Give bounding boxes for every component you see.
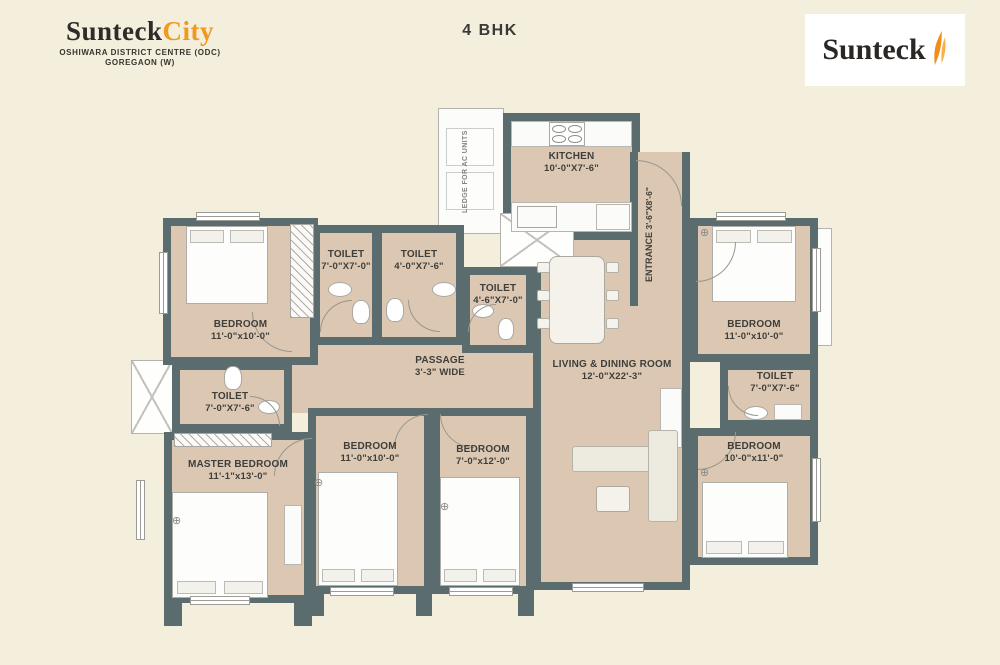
pillow xyxy=(322,569,355,582)
floor-plan: SunteckCity OSHIWARA DISTRICT CENTRE (OD… xyxy=(0,0,1000,665)
chair-symbol xyxy=(537,318,550,329)
label-living-dining: LIVING & DINING ROOM12'-0"X22'-3" xyxy=(538,358,686,383)
label-bedroom-top-left: BEDROOM11'-0"x10'-0" xyxy=(168,318,313,343)
wc-symbol xyxy=(498,318,514,340)
ac-ledge-box xyxy=(438,108,504,234)
wc-symbol xyxy=(352,300,370,324)
chair-symbol xyxy=(606,318,619,329)
bed-symbol xyxy=(318,472,398,586)
bath-counter xyxy=(774,404,802,420)
window-symbol xyxy=(330,587,394,596)
wardrobe-symbol xyxy=(174,433,272,447)
window-symbol xyxy=(812,248,821,312)
pillow xyxy=(757,230,791,243)
window-symbol xyxy=(136,480,145,540)
kitchen-sink xyxy=(517,206,557,228)
window-symbol xyxy=(190,596,250,605)
washbasin-symbol xyxy=(432,282,456,297)
label-passage: PASSAGE3'-3" WIDE xyxy=(385,354,495,379)
pillow xyxy=(230,230,264,243)
developer-logo-text: Sunteck xyxy=(822,33,925,67)
chair-symbol xyxy=(606,262,619,273)
pillow xyxy=(361,569,394,582)
label-kitchen: KITCHEN10'-0"X7'-6" xyxy=(511,150,632,175)
window-symbol xyxy=(196,212,260,221)
chair-symbol xyxy=(537,290,550,301)
label-toilet-left: TOILET7'-0"X7'-6" xyxy=(180,390,280,415)
pillow xyxy=(748,541,783,554)
ac-unit-icon: ⊕ xyxy=(700,468,709,479)
window-symbol xyxy=(716,212,786,221)
label-master-bedroom: MASTER BEDROOM11'-1"x13'-0" xyxy=(168,458,308,483)
wall-pillar xyxy=(416,590,432,616)
burner xyxy=(568,125,582,133)
ac-unit-icon: ⊕ xyxy=(314,478,323,489)
label-toilet-mid: TOILET4'-6"X7'-0" xyxy=(464,282,532,307)
label-toilet-top-left: TOILET7'-0"X7'-0" xyxy=(314,248,378,273)
burner xyxy=(552,125,566,133)
wc-symbol xyxy=(224,366,242,390)
window-symbol xyxy=(812,458,821,522)
pillow xyxy=(224,581,263,594)
ac-unit-icon: ⊕ xyxy=(172,516,181,527)
window-symbol xyxy=(449,587,513,596)
chair-symbol xyxy=(606,290,619,301)
pillow xyxy=(706,541,741,554)
bed-symbol xyxy=(172,492,268,598)
pillow xyxy=(444,569,477,582)
wall-pillar xyxy=(308,590,324,616)
label-bedroom-top-right: BEDROOM11'-0"x10'-0" xyxy=(698,318,810,343)
stove-icon xyxy=(549,122,585,146)
washbasin-symbol xyxy=(328,282,352,297)
brand-subtitle-2: GOREGAON (W) xyxy=(30,58,250,67)
dining-table-symbol xyxy=(549,256,605,344)
left-ledge-box xyxy=(131,360,173,434)
pillow xyxy=(483,569,516,582)
developer-logo: Sunteck xyxy=(805,14,965,86)
fridge-symbol xyxy=(596,204,630,230)
window-symbol xyxy=(159,252,168,314)
coffee-table-symbol xyxy=(596,486,630,512)
label-entrance: ENTRANCE 3'-6"X8'-6" xyxy=(644,196,655,282)
brand-subtitle-1: OSHIWARA DISTRICT CENTRE (ODC) xyxy=(30,48,250,57)
label-bedroom-mid-right: BEDROOM7'-0"x12'-0" xyxy=(434,443,532,468)
wc-symbol xyxy=(386,298,404,322)
bed-symbol xyxy=(186,226,268,304)
sofa-symbol xyxy=(648,430,678,522)
burner xyxy=(552,135,566,143)
sofa-symbol xyxy=(572,446,650,472)
bed-symbol xyxy=(440,477,520,586)
label-bedroom-bottom-right: BEDROOM10'-0"x11'-0" xyxy=(696,440,812,465)
pillow xyxy=(190,230,224,243)
pillow xyxy=(177,581,216,594)
dresser-symbol xyxy=(284,505,302,565)
wall-pillar xyxy=(518,590,534,616)
label-bedroom-mid-left: BEDROOM11'-0"x10'-0" xyxy=(312,440,428,465)
label-ac-ledge: LEDGE FOR AC UNITS xyxy=(462,122,471,222)
ac-unit-icon: ⊕ xyxy=(440,502,449,513)
chair-symbol xyxy=(537,262,550,273)
wardrobe-symbol xyxy=(290,224,314,318)
burner xyxy=(568,135,582,143)
wall-pillar xyxy=(164,598,182,626)
sunteck-flame-icon xyxy=(930,30,948,71)
window-symbol xyxy=(572,583,644,592)
label-toilet-right: TOILET7'-0"X7'-6" xyxy=(736,370,814,395)
bed-symbol xyxy=(702,482,788,558)
ac-unit-icon: ⊕ xyxy=(700,228,709,239)
label-toilet-top-mid: TOILET4'-0"X7'-6" xyxy=(376,248,462,273)
